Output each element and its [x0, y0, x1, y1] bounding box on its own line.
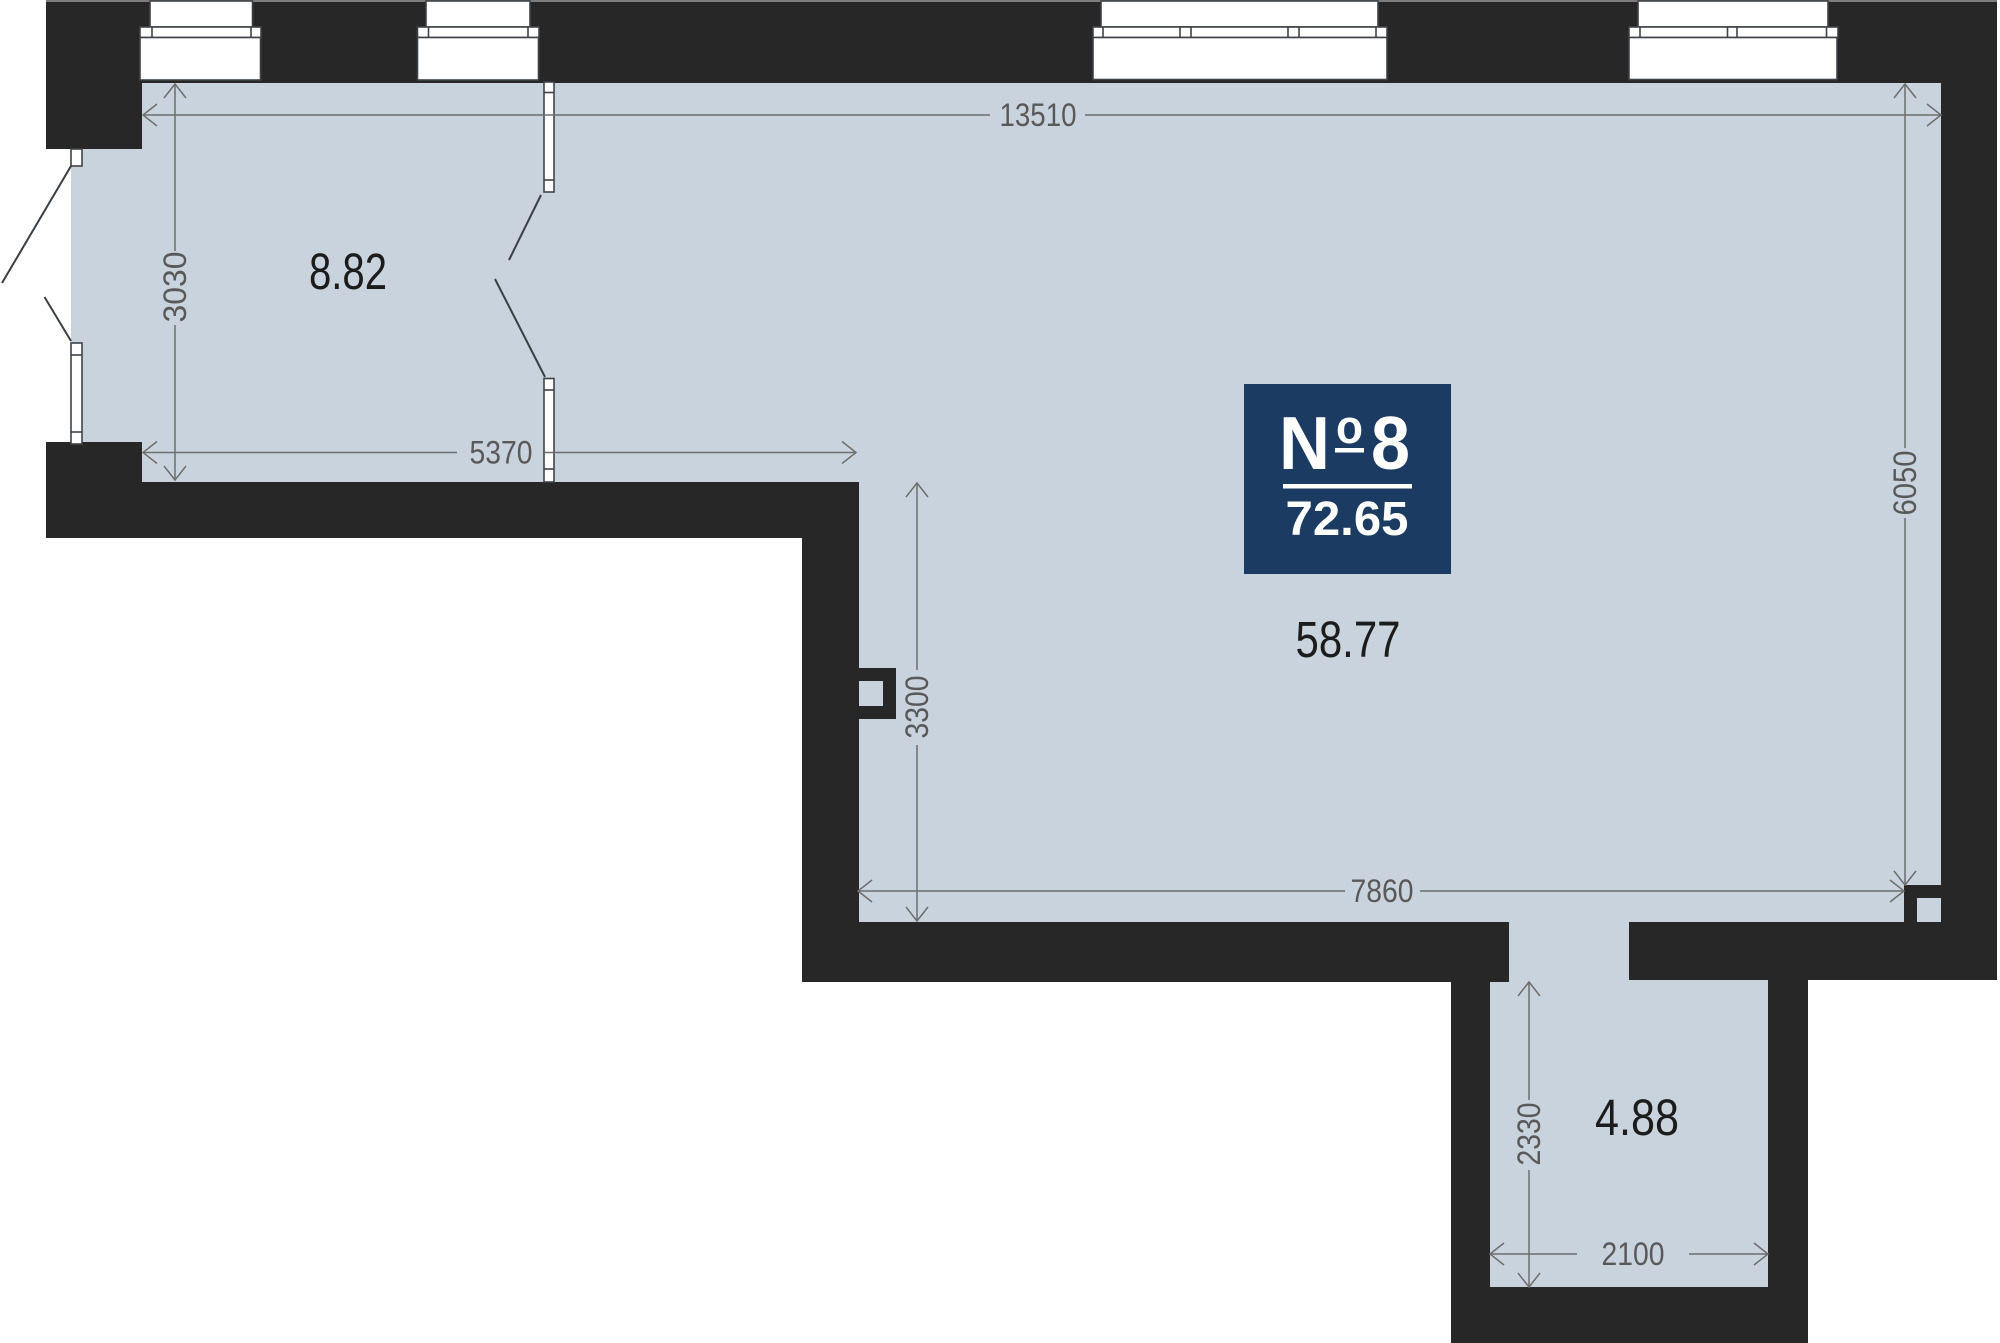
svg-text:3030: 3030 [157, 252, 193, 323]
svg-text:2330: 2330 [1511, 1103, 1547, 1166]
svg-text:2100: 2100 [1602, 1236, 1665, 1272]
svg-text:3300: 3300 [899, 676, 935, 739]
svg-text:8: 8 [1371, 401, 1410, 485]
svg-text:8.82: 8.82 [309, 243, 387, 300]
svg-text:72.65: 72.65 [1286, 493, 1409, 546]
svg-text:4.88: 4.88 [1595, 1089, 1679, 1146]
svg-text:58.77: 58.77 [1296, 611, 1401, 668]
svg-text:o: o [1336, 400, 1363, 453]
svg-text:5370: 5370 [470, 435, 533, 471]
svg-text:7860: 7860 [1351, 873, 1414, 909]
svg-text:6050: 6050 [1887, 451, 1923, 516]
svg-text:13510: 13510 [1000, 97, 1077, 133]
svg-text:N: N [1279, 401, 1330, 485]
